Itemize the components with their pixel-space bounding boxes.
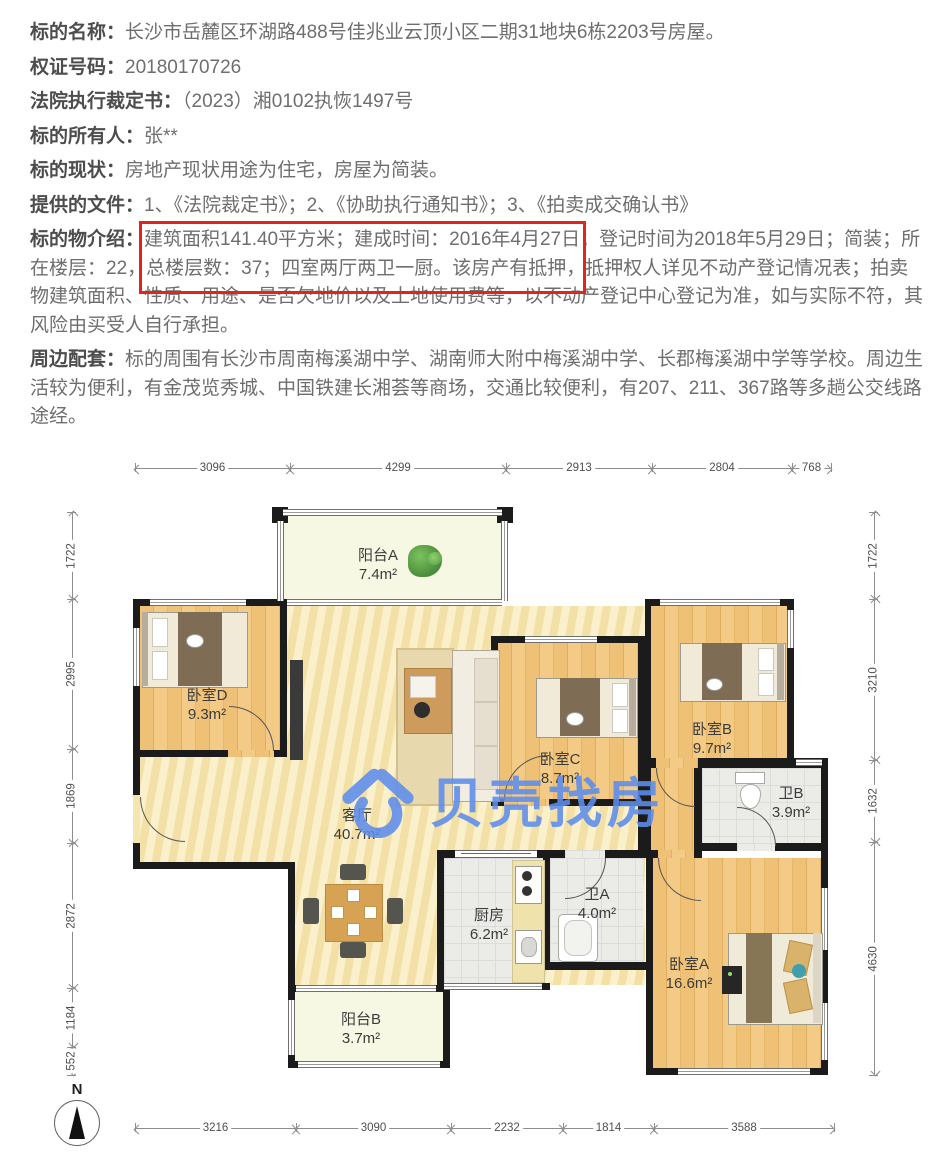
tray — [410, 676, 436, 698]
dim-top-2: 2913 — [506, 461, 652, 475]
dim-bottom-4: 3588 — [654, 1121, 834, 1135]
field-value: 20180170726 — [125, 57, 241, 78]
dim-right-0: 1722 — [867, 512, 881, 599]
window — [796, 759, 822, 766]
wall — [694, 758, 702, 850]
tv-console — [290, 660, 303, 760]
dim-bottom-2: 2232 — [451, 1121, 563, 1135]
dim-value: 4299 — [382, 461, 414, 475]
dim-value: 3096 — [197, 461, 229, 475]
plate — [331, 906, 344, 919]
room-name: 阳台A — [318, 546, 438, 565]
room-label-balcony-b: 阳台B3.7m² — [301, 1010, 421, 1048]
dim-top-4: 768 — [792, 461, 831, 475]
field-label: 标的所有人： — [30, 126, 144, 147]
window — [787, 610, 794, 648]
beike-logo-icon — [338, 758, 418, 838]
field-court-ruling: 法院执行裁定书：（2023）湘0102执恢1497号 — [30, 88, 927, 117]
round-cushion — [792, 964, 806, 978]
dim-value: 1632 — [868, 785, 881, 817]
room-area: 9.7m² — [652, 739, 772, 758]
pillow — [758, 648, 774, 671]
dim-left-3: 2872 — [65, 843, 79, 988]
compass-circle-icon — [54, 1100, 100, 1146]
room-name: 阳台B — [301, 1010, 421, 1029]
compass-needle-icon — [69, 1106, 85, 1139]
dim-value: 4630 — [868, 943, 881, 975]
field-status: 标的现状：房地产现状用途为住宅，房屋为简装。 — [30, 157, 927, 186]
dim-right-3: 4630 — [867, 842, 881, 1075]
field-label: 提供的文件： — [30, 195, 144, 216]
room-area: 7.4m² — [318, 565, 438, 584]
dim-value: 1184 — [66, 1002, 79, 1033]
room-area: 3.7m² — [301, 1029, 421, 1048]
field-label: 标的现状： — [30, 160, 125, 181]
room-label-bedroom-d: 卧室D9.3m² — [147, 686, 267, 724]
bathtub-inner — [564, 920, 592, 956]
window — [288, 1000, 295, 1055]
dim-value: 2995 — [66, 658, 79, 690]
compass-north-label: N — [50, 1082, 104, 1098]
dim-value: 552 — [66, 1048, 79, 1073]
pillow — [152, 651, 168, 680]
window — [444, 983, 542, 990]
dim-value: 1869 — [66, 780, 79, 812]
bed-blanket — [178, 612, 222, 686]
field-label: 标的名称： — [30, 22, 125, 43]
field-value: （2023）湘0102执恢1497号 — [182, 91, 413, 112]
dim-left-4: 1184 — [65, 988, 79, 1047]
dim-left-1: 2995 — [65, 599, 79, 749]
dim-value: 2872 — [66, 900, 79, 932]
room-name: 卫A — [537, 885, 657, 904]
kettle — [414, 702, 430, 718]
wall — [133, 862, 295, 869]
room-area: 6.2m² — [429, 925, 549, 944]
bed-blanket — [746, 933, 772, 1023]
plate — [347, 889, 360, 902]
dim-value: 3090 — [358, 1121, 390, 1135]
chair — [303, 898, 319, 924]
bed-headboard — [629, 678, 636, 736]
room-name: 卧室B — [652, 720, 772, 739]
field-value: 标的周围有长沙市周南梅溪湖中学、湖南师大附中梅溪湖中学、长郡梅溪湖中学等学校。周… — [30, 349, 923, 427]
dim-value: 3216 — [200, 1121, 232, 1135]
dim-right-1: 3210 — [867, 599, 881, 760]
compass: N — [50, 1082, 104, 1146]
dim-value: 1814 — [593, 1121, 625, 1135]
window — [660, 599, 780, 606]
room-area: 4.0m² — [537, 904, 657, 923]
burner — [522, 871, 532, 881]
pillow — [612, 709, 628, 733]
dim-left-2: 1869 — [65, 749, 79, 843]
window — [501, 521, 508, 601]
window — [678, 1068, 810, 1075]
ceiling-lamp-icon — [566, 712, 584, 726]
room-name: 厨房 — [429, 906, 549, 925]
room-label-balcony-a: 阳台A7.4m² — [318, 546, 438, 584]
wall — [443, 985, 450, 1068]
dim-right-2: 1632 — [867, 760, 881, 842]
room-name: 卧室D — [147, 686, 267, 705]
dim-bottom-0: 3216 — [135, 1121, 296, 1135]
pillow — [758, 673, 774, 696]
room-area: 3.9m² — [731, 803, 851, 822]
ceiling-lamp-icon — [706, 678, 723, 691]
room-label-bathroom-b: 卫B3.9m² — [731, 784, 851, 822]
watermark-text: 贝壳找房 — [430, 759, 666, 838]
window — [133, 628, 140, 686]
room-label-bedroom-b: 卧室B9.7m² — [652, 720, 772, 758]
bed-blanket — [702, 643, 742, 700]
field-value: 长沙市岳麓区环湖路488号佳兆业云顶小区二期31地块6栋2203号房屋。 — [125, 22, 725, 43]
dim-left-0: 1722 — [65, 512, 79, 599]
highlight-box — [139, 221, 586, 294]
dim-value: 2913 — [563, 461, 595, 475]
ceiling-lamp-icon — [186, 634, 204, 648]
field-subject-name: 标的名称：长沙市岳麓区环湖路488号佳兆业云顶小区二期31地块6栋2203号房屋… — [30, 19, 927, 48]
field-label: 法院执行裁定书： — [30, 91, 182, 112]
watermark: 贝壳找房 — [338, 758, 666, 838]
outside-mask — [131, 869, 288, 1161]
wall — [280, 599, 287, 757]
field-documents: 提供的文件：1、《法院裁定书》；2、《协助执行通知书》；3、《拍卖成交确认书》 — [30, 192, 927, 221]
window — [277, 521, 284, 601]
pillow — [152, 618, 168, 647]
door-gap — [228, 750, 274, 757]
dim-bottom-1: 3090 — [296, 1121, 451, 1135]
plate — [364, 906, 377, 919]
window — [298, 1061, 440, 1068]
dim-top-0: 3096 — [135, 461, 290, 475]
window — [525, 636, 597, 643]
toilet-tank — [735, 772, 765, 784]
bed-headboard — [777, 643, 784, 700]
kitchen-sliding-door-line — [461, 853, 531, 854]
field-value: 张** — [144, 126, 178, 147]
dim-value: 2232 — [491, 1121, 523, 1135]
door-gap — [658, 850, 694, 858]
door-gap-entry — [133, 795, 140, 843]
pillow — [612, 683, 628, 707]
field-value: 房地产现状用途为住宅，房屋为简装。 — [125, 160, 448, 181]
dim-value: 1722 — [868, 540, 881, 572]
room-area: 9.3m² — [147, 705, 267, 724]
chair — [387, 898, 403, 924]
room-label-kitchen: 厨房6.2m² — [429, 906, 549, 944]
sofa-cushion — [474, 702, 498, 746]
plate — [347, 923, 360, 936]
field-value: 1、《法院裁定书》；2、《协助执行通知书》；3、《拍卖成交确认书》 — [144, 195, 698, 216]
room-name: 卧室A — [629, 955, 749, 974]
dim-value: 3210 — [868, 664, 881, 696]
dim-value: 2804 — [706, 461, 738, 475]
room-label-bathroom-a: 卫A4.0m² — [537, 885, 657, 923]
burner — [522, 886, 532, 896]
bed-headboard — [142, 612, 148, 686]
field-label: 权证号码： — [30, 57, 125, 78]
window — [283, 509, 502, 516]
window — [150, 599, 246, 606]
bed-blanket — [560, 678, 600, 736]
field-label: 标的物介绍： — [30, 229, 144, 250]
field-cert-number: 权证号码：20180170726 — [30, 54, 927, 83]
chair — [340, 942, 366, 958]
sofa-cushion — [474, 658, 498, 702]
kitchen-sliding-door — [455, 850, 537, 858]
room-area: 16.6m² — [629, 974, 749, 993]
window — [287, 599, 502, 606]
chair — [340, 864, 366, 880]
room-label-bedroom-a: 卧室A16.6m² — [629, 955, 749, 993]
bed-headboard — [813, 933, 821, 1023]
room-name: 卫B — [731, 784, 851, 803]
dim-value: 3588 — [728, 1121, 760, 1135]
dim-left-5: 552 — [65, 1047, 79, 1075]
dim-value: 1722 — [66, 540, 79, 572]
dim-bottom-3: 1814 — [563, 1121, 654, 1135]
dim-value: 768 — [799, 461, 824, 475]
dim-top-3: 2804 — [652, 461, 792, 475]
field-surroundings: 周边配套：标的周围有长沙市周南梅溪湖中学、湖南师大附中梅溪湖中学、长郡梅溪湖中学… — [30, 346, 927, 432]
door-gap — [565, 850, 605, 858]
window — [296, 985, 436, 992]
field-owner: 标的所有人：张** — [30, 123, 927, 152]
field-label: 周边配套： — [30, 349, 125, 370]
dim-top-1: 4299 — [290, 461, 506, 475]
